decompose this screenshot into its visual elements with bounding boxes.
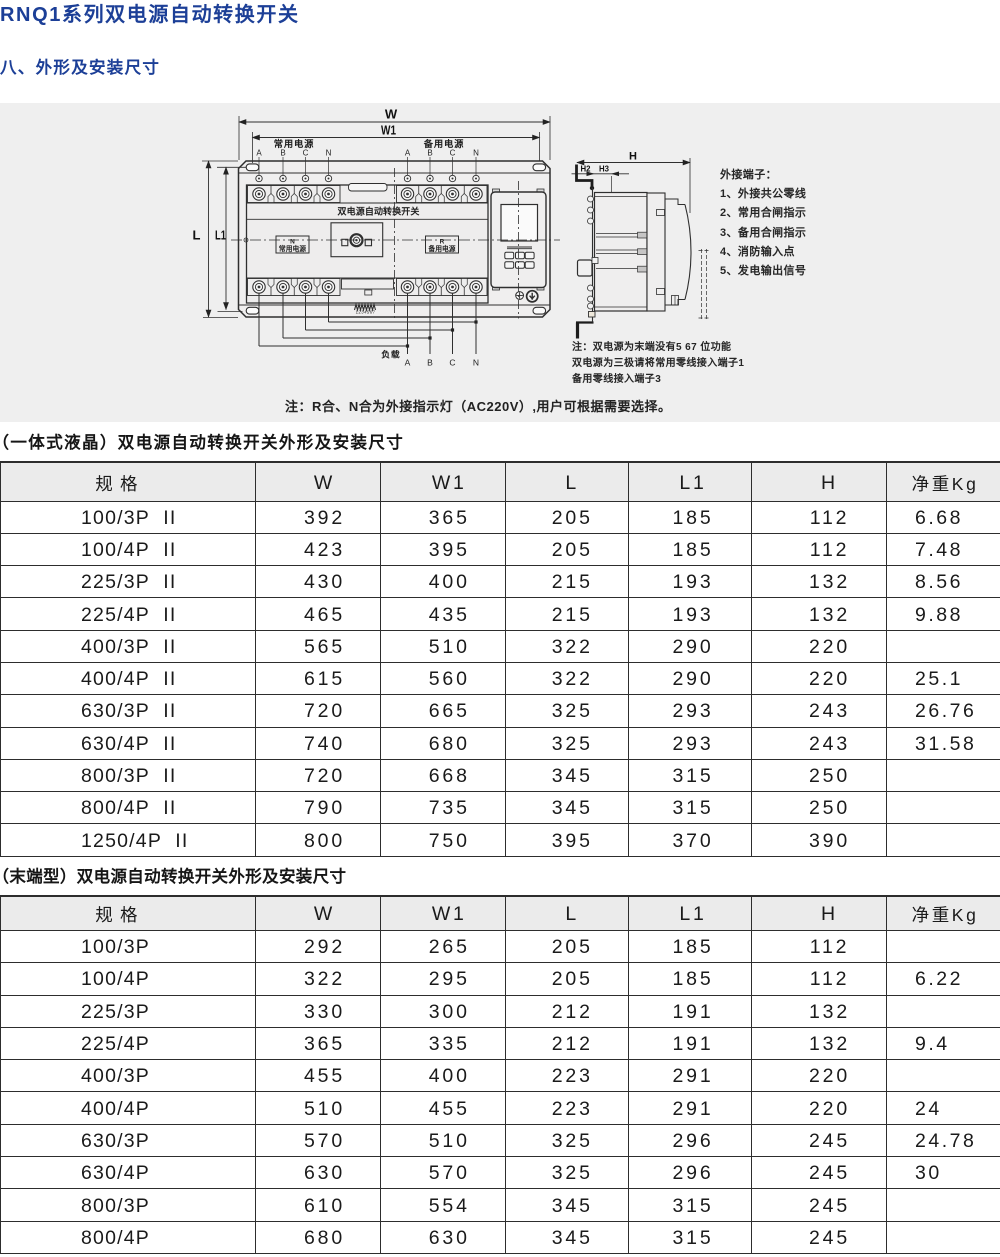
svg-text:N: N	[473, 358, 479, 368]
svg-text:B: B	[280, 148, 285, 157]
svg-text:A: A	[405, 148, 411, 157]
svg-text:C: C	[303, 148, 309, 157]
svg-text:R: R	[440, 239, 445, 246]
svg-text:负载: 负载	[381, 349, 400, 360]
svg-text:C: C	[449, 358, 455, 368]
svg-text:H: H	[629, 151, 637, 163]
svg-text:H2: H2	[581, 165, 592, 174]
svg-text:常用电源: 常用电源	[279, 244, 306, 253]
svg-text:A: A	[256, 148, 262, 157]
svg-text:双电源自动转换开关: 双电源自动转换开关	[338, 205, 420, 216]
svg-text:B: B	[427, 358, 433, 368]
svg-text:备用电源: 备用电源	[427, 244, 455, 253]
svg-text:1234567: 1234567	[356, 310, 376, 315]
svg-text:W1: W1	[381, 123, 396, 138]
svg-text:N: N	[473, 148, 479, 157]
svg-text:H3: H3	[599, 165, 610, 174]
svg-text:C: C	[450, 148, 456, 157]
svg-text:A: A	[405, 358, 411, 368]
svg-text:B: B	[427, 148, 432, 157]
svg-text:W: W	[385, 107, 398, 122]
svg-text:常用电源: 常用电源	[274, 138, 314, 149]
svg-text:L: L	[193, 228, 201, 243]
svg-text:N: N	[326, 148, 332, 157]
svg-text:L1: L1	[215, 228, 226, 243]
svg-text:备用电源: 备用电源	[423, 138, 464, 149]
svg-text:N: N	[290, 239, 295, 246]
